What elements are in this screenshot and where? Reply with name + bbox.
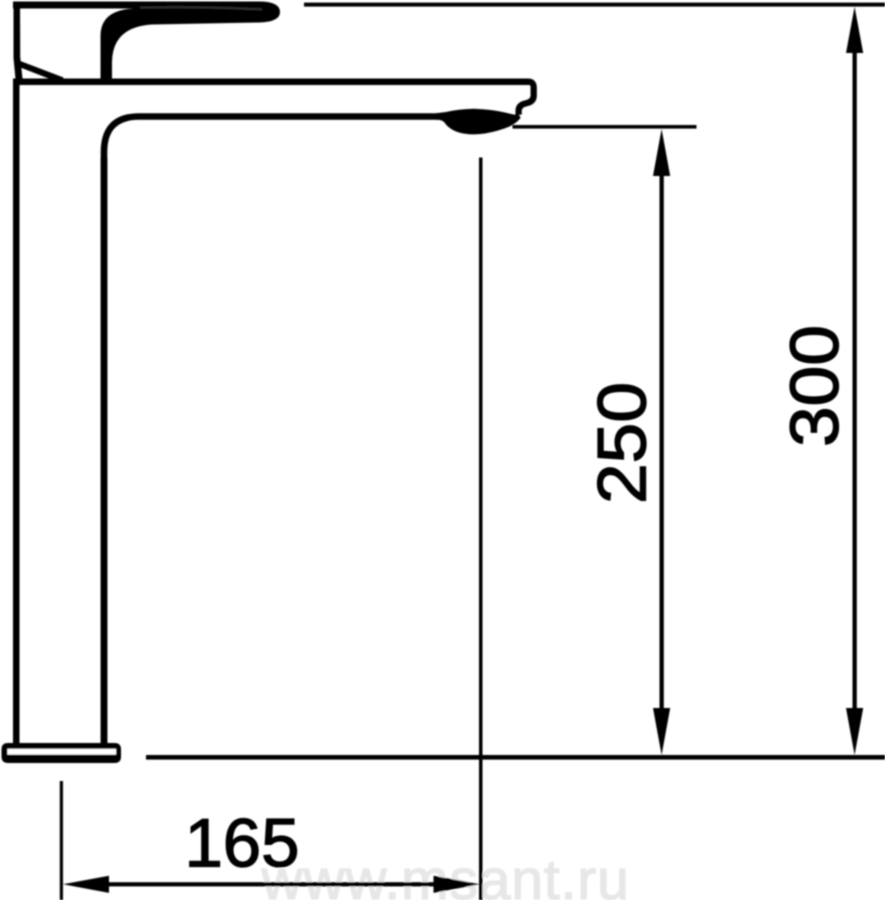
svg-text:165: 165 <box>184 805 299 882</box>
svg-text:250: 250 <box>584 382 661 504</box>
svg-text:www.msant.ru: www.msant.ru <box>261 848 630 900</box>
svg-text:300: 300 <box>777 325 854 447</box>
